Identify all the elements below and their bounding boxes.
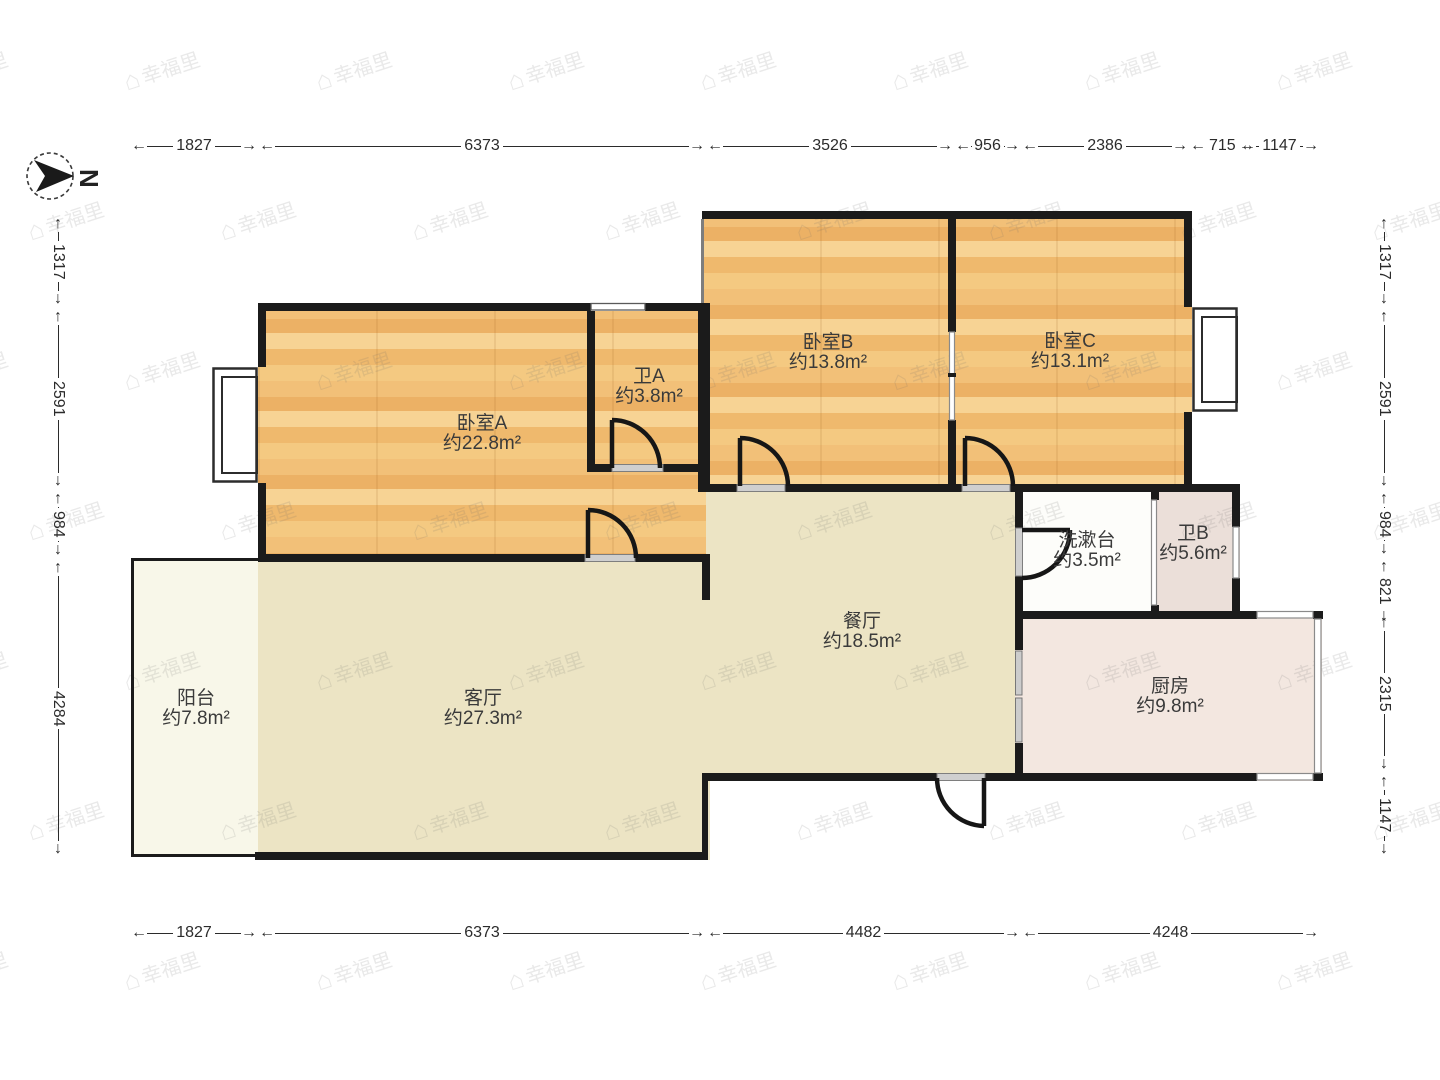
- wall-stub: [702, 562, 710, 600]
- wall-thin: [701, 219, 704, 305]
- room-name: 洗漱台: [1053, 531, 1121, 551]
- wall: [1313, 611, 1323, 619]
- wall: [1015, 484, 1023, 528]
- threshold-bedroom-b: [737, 485, 785, 492]
- balcony-wall: [131, 558, 258, 561]
- walls: [131, 211, 1323, 860]
- wall: [587, 464, 612, 472]
- wall: [1010, 484, 1240, 492]
- threshold-bath-a: [612, 465, 663, 472]
- room-area: 约7.8m²: [162, 709, 230, 729]
- room-label-bedroom-b: 卧室B 约13.8m²: [789, 333, 867, 373]
- floorplan-canvas: ⌂幸福里⌂幸福里⌂幸福里⌂幸福里⌂幸福里⌂幸福里⌂幸福里⌂幸福里⌂幸福里⌂幸福里…: [0, 0, 1440, 1080]
- room-name: 卫B: [1159, 524, 1227, 544]
- threshold-entry: [937, 774, 985, 781]
- room-name: 卧室C: [1031, 332, 1109, 352]
- wall: [587, 303, 595, 472]
- room-label-bedroom-a: 卧室A 约22.8m²: [443, 414, 521, 454]
- wall: [948, 219, 956, 332]
- door-bedroom-c: [965, 438, 1013, 486]
- wall: [258, 303, 591, 311]
- room-label-dining: 餐厅 约18.5m²: [823, 612, 901, 652]
- compass: N: [27, 153, 104, 199]
- partition-bc-tick: [948, 373, 956, 377]
- wall: [702, 211, 1192, 219]
- north-arrow-icon: [34, 160, 74, 192]
- door-bedroom-b: [740, 438, 788, 486]
- wall: [948, 420, 956, 492]
- sliding-door-kitchen: [1016, 698, 1023, 742]
- room-area: 约9.8m²: [1136, 697, 1204, 717]
- wall: [255, 852, 708, 860]
- sliding-door-kitchen: [1016, 651, 1023, 695]
- wall-step: [702, 781, 708, 858]
- window-kitchen-top: [1257, 612, 1313, 619]
- wall: [635, 554, 710, 562]
- wall: [1015, 611, 1023, 650]
- wall: [698, 303, 710, 492]
- room-name: 餐厅: [823, 612, 901, 632]
- door-entry: [937, 778, 984, 826]
- room-name: 阳台: [162, 689, 230, 709]
- room-label-balcony: 阳台 约7.8m²: [162, 689, 230, 729]
- room-area: 约22.8m²: [443, 434, 521, 454]
- room-area: 约13.8m²: [789, 353, 867, 373]
- room-name: 卫A: [615, 367, 683, 387]
- wall: [785, 484, 962, 492]
- wall: [1151, 484, 1159, 500]
- door-bath-a: [612, 420, 660, 468]
- room-label-bath-a: 卫A 约3.8m²: [615, 367, 683, 407]
- wall: [985, 773, 1257, 781]
- wall: [258, 483, 266, 562]
- threshold-washstand: [1016, 528, 1023, 576]
- threshold-bedroom-c: [962, 485, 1010, 492]
- room-label-living: 客厅 约27.3m²: [444, 689, 522, 729]
- wall: [1184, 412, 1192, 492]
- room-label-kitchen: 厨房 约9.8m²: [1136, 677, 1204, 717]
- wall: [258, 303, 266, 367]
- room-area: 约5.6m²: [1159, 544, 1227, 564]
- room-name: 客厅: [444, 689, 522, 709]
- room-label-bedroom-c: 卧室C 约13.1m²: [1031, 332, 1109, 372]
- wall: [1184, 211, 1192, 307]
- room-area: 约27.3m²: [444, 709, 522, 729]
- room-area: 约18.5m²: [823, 632, 901, 652]
- room-label-washstand: 洗漱台 约3.5m²: [1053, 531, 1121, 571]
- wall: [1015, 611, 1257, 619]
- wall: [1232, 484, 1240, 527]
- thresholds: [585, 465, 1023, 781]
- room-area: 约13.1m²: [1031, 352, 1109, 372]
- window-kitchen-bottom: [1257, 774, 1313, 781]
- balcony-wall: [131, 854, 258, 857]
- wall: [645, 303, 702, 311]
- wall: [258, 554, 585, 562]
- room-area: 约3.8m²: [615, 387, 683, 407]
- compass-n: N: [74, 169, 104, 188]
- threshold-bedroom-a: [585, 555, 635, 562]
- balcony-wall: [131, 558, 134, 857]
- window-kitchen-right: [1315, 619, 1322, 773]
- room-name: 卧室B: [789, 333, 867, 353]
- window-bath-b: [1233, 527, 1239, 578]
- room-name: 卧室A: [443, 414, 521, 434]
- room-name: 厨房: [1136, 677, 1204, 697]
- partition-wash-bathb: [1152, 500, 1157, 605]
- wall: [1313, 773, 1323, 781]
- door-bedroom-a: [588, 510, 636, 558]
- wall: [702, 773, 937, 781]
- room-label-bath-b: 卫B 约5.6m²: [1159, 524, 1227, 564]
- room-area: 约3.5m²: [1053, 551, 1121, 571]
